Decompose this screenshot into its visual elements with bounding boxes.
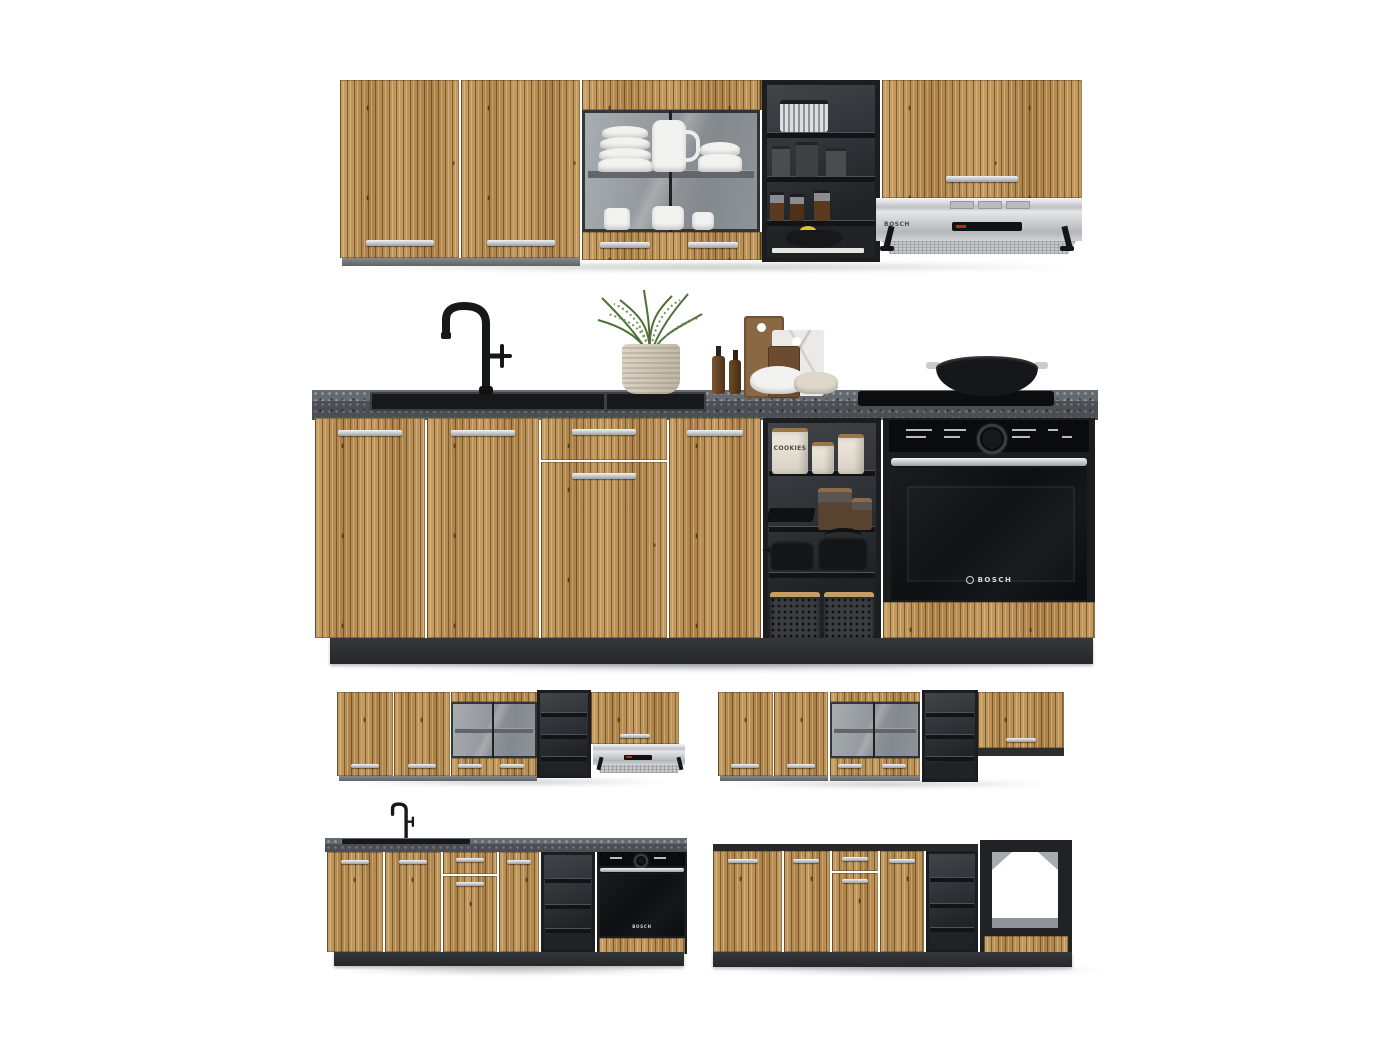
cavity-base-panel [992, 918, 1058, 928]
open-shelf-unit [926, 851, 978, 952]
under-oven-drawer [984, 936, 1068, 953]
base-cabinet-door [713, 851, 782, 952]
plinth [713, 952, 1072, 967]
shelf [930, 903, 974, 908]
carcass-top [713, 844, 978, 851]
kitchen-set-product-image: BOSCH [0, 0, 1400, 1050]
oven-cavity-opening [992, 852, 1058, 928]
drawer-front [832, 851, 878, 871]
base-module-right [0, 0, 1400, 1050]
door-handle [793, 859, 819, 863]
drawer-handle [842, 857, 868, 861]
door-handle [842, 879, 868, 883]
shelf [930, 877, 974, 882]
base-cabinet-door [832, 873, 878, 952]
door-handle [728, 859, 758, 863]
base-cabinet-door [784, 851, 830, 952]
door-handle [889, 859, 915, 863]
shelf [930, 927, 974, 932]
base-cabinet-door [880, 851, 924, 952]
